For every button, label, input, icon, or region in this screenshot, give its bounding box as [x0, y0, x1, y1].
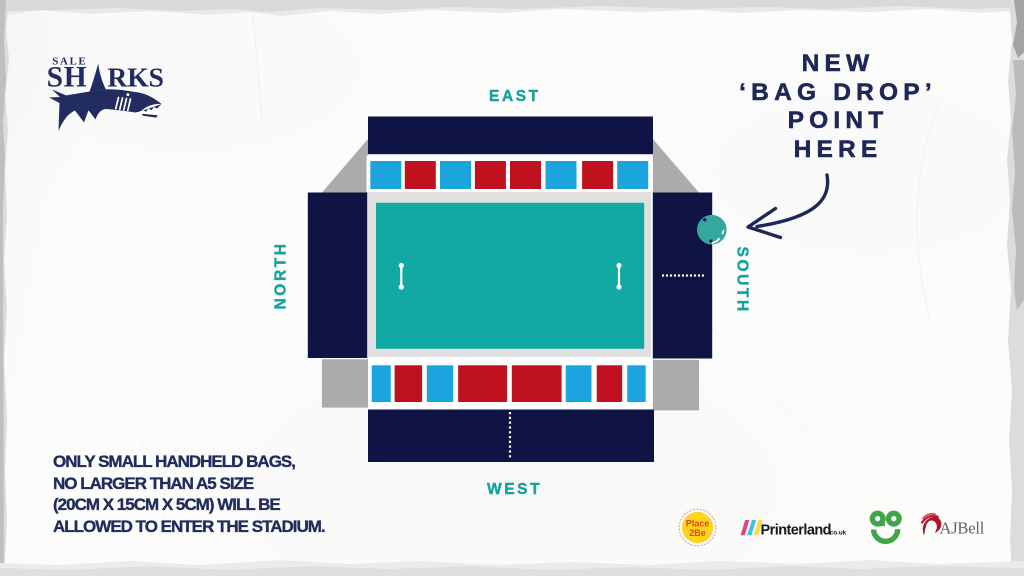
svg-text:SH: SH	[47, 62, 88, 94]
svg-text:AJBell: AJBell	[940, 518, 985, 537]
svg-text:Place: Place	[686, 519, 710, 529]
svg-text:2Be: 2Be	[689, 528, 706, 538]
svg-text:Printerland: Printerland	[761, 523, 832, 539]
svg-text:.co.uk: .co.uk	[828, 529, 846, 536]
svg-text:RKS: RKS	[107, 62, 164, 93]
